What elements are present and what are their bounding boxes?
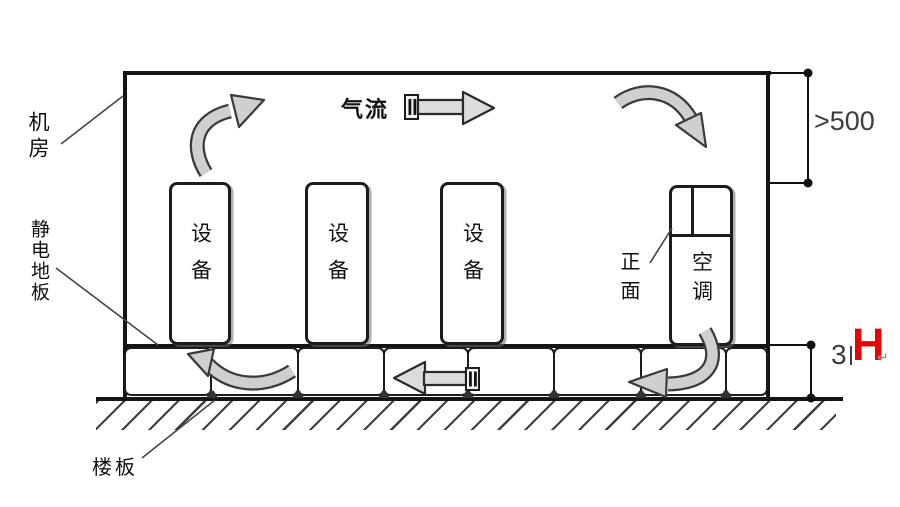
- floor-tile: [124, 347, 212, 396]
- equipment-cabinet-3: 设备: [440, 182, 504, 345]
- floor-tile: [553, 347, 642, 396]
- floor-height-dimension-clipped: 3: [831, 339, 852, 371]
- downflow-arrow-top-right-icon: [618, 93, 706, 147]
- equipment-cabinet-1: 设备: [169, 182, 231, 345]
- airflow-right-arrow-icon: [405, 92, 494, 124]
- recirculation-arrow-top-left-icon: [197, 95, 264, 173]
- floor-tile: [210, 347, 299, 396]
- paragraph-mark: ↵: [877, 349, 889, 366]
- ceiling-clearance-dimension: >500: [814, 106, 875, 137]
- air-conditioner-cabinet: 空调: [669, 185, 733, 346]
- ac-label: 空调: [691, 251, 712, 309]
- ac-panel-divider-vertical: [691, 188, 694, 234]
- dimension-line-floor: [770, 341, 816, 403]
- slab-label: 楼板: [92, 451, 138, 480]
- leader-line-antistatic-floor: [56, 268, 158, 345]
- floor-tile: [383, 347, 469, 396]
- room-label: 机房: [27, 111, 48, 163]
- leader-line-room: [61, 96, 123, 144]
- ac-panel-divider-horizontal: [672, 234, 730, 237]
- floor-tile: [725, 347, 768, 396]
- ground-hatching: [96, 401, 836, 430]
- airflow-label: 气流: [341, 92, 389, 124]
- room-top-wall: [123, 71, 771, 75]
- front-label: 正面: [618, 251, 638, 309]
- floor-tile: [297, 347, 385, 396]
- equipment-label: 设备: [190, 222, 211, 296]
- equipment-cabinet-2: 设备: [305, 182, 369, 345]
- floor-tile: [467, 347, 555, 396]
- equipment-label: 设备: [462, 222, 483, 296]
- dimension-line-top: [770, 69, 813, 188]
- equipment-label: 设备: [327, 222, 348, 296]
- antistatic-floor-label: 静电地板: [29, 219, 48, 303]
- floor-tile: [640, 347, 727, 396]
- machine-room-airflow-diagram: 设备 设备 设备 空调 机房 静电地板 楼板 气流 正面 >500 3 H ↵: [0, 0, 900, 507]
